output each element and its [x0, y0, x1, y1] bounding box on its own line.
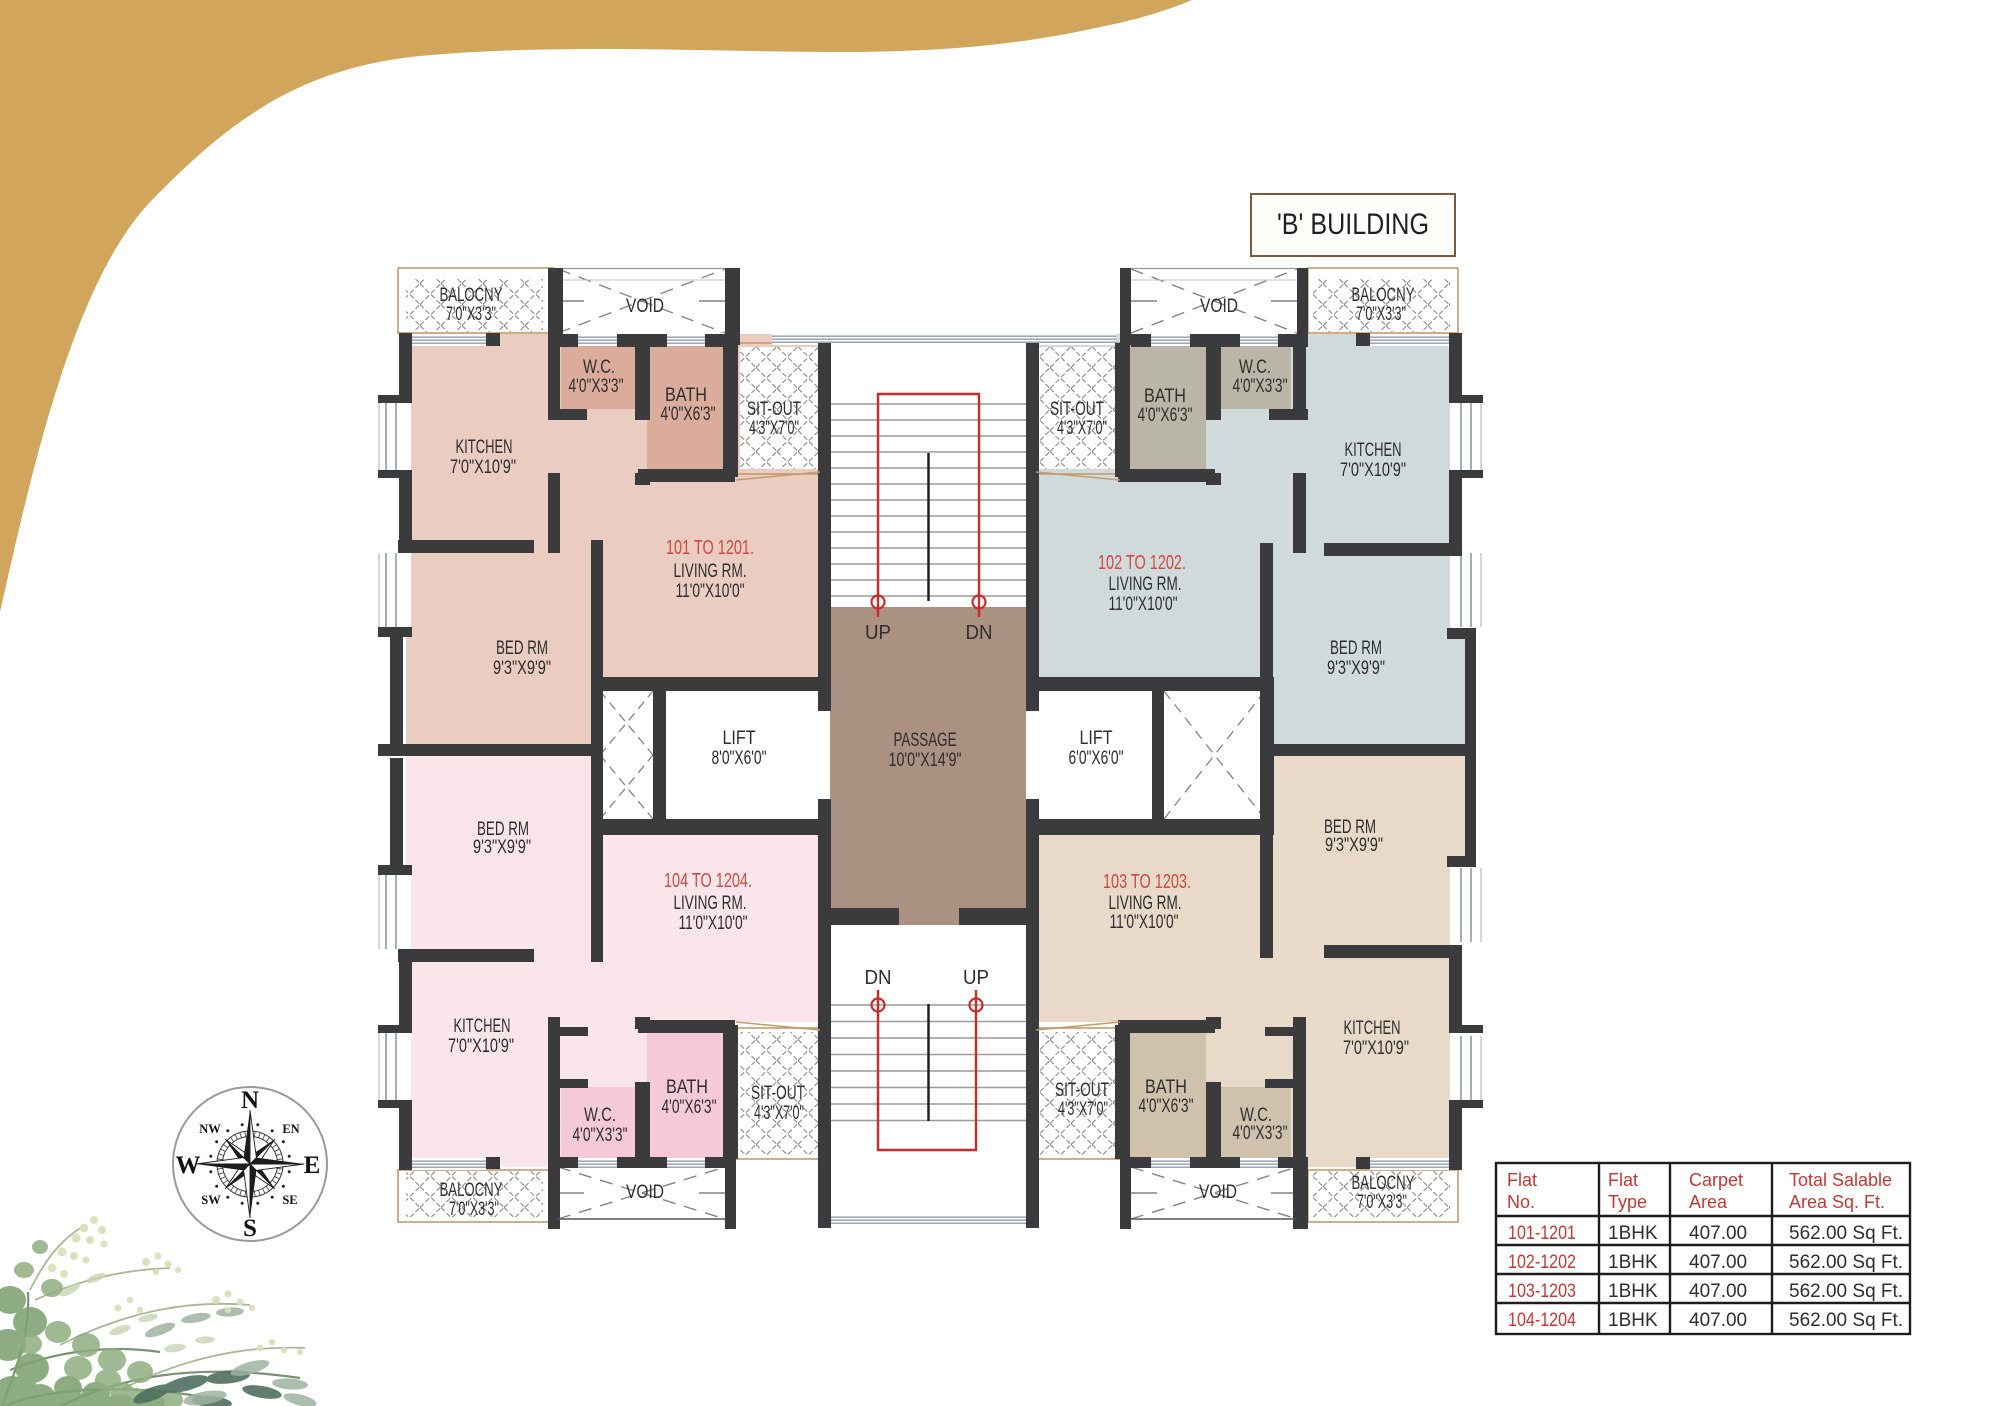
- svg-text:LIVING RM.: LIVING RM.: [1109, 574, 1182, 595]
- svg-text:SIT-OUT: SIT-OUT: [751, 1083, 805, 1104]
- svg-text:11'0"X10'0": 11'0"X10'0": [1109, 594, 1178, 615]
- svg-text:KITCHEN: KITCHEN: [1345, 440, 1402, 461]
- svg-text:6'0"X6'0": 6'0"X6'0": [1069, 748, 1124, 769]
- svg-text:BALOCNY: BALOCNY: [440, 285, 503, 306]
- svg-text:4'0"X3'3": 4'0"X3'3": [573, 1125, 628, 1146]
- svg-text:562.00 Sq Ft.: 562.00 Sq Ft.: [1789, 1310, 1903, 1331]
- svg-text:Carpet: Carpet: [1689, 1170, 1743, 1190]
- svg-text:BATH: BATH: [1144, 386, 1186, 407]
- svg-text:103-1203: 103-1203: [1508, 1281, 1576, 1302]
- svg-text:KITCHEN: KITCHEN: [454, 1016, 511, 1037]
- svg-text:UP: UP: [865, 622, 891, 644]
- svg-text:4'0"X3'3": 4'0"X3'3": [569, 376, 624, 397]
- svg-text:Area: Area: [1689, 1192, 1728, 1212]
- svg-text:KITCHEN: KITCHEN: [1344, 1018, 1401, 1039]
- svg-text:102-1202: 102-1202: [1508, 1252, 1576, 1273]
- svg-text:104 TO 1204.: 104 TO 1204.: [664, 870, 752, 892]
- svg-text:Flat: Flat: [1507, 1170, 1537, 1190]
- svg-text:9'3"X9'9": 9'3"X9'9": [1325, 835, 1383, 856]
- svg-text:407.00: 407.00: [1689, 1252, 1747, 1273]
- svg-text:LIFT: LIFT: [1080, 728, 1113, 749]
- svg-text:10'0"X14'9": 10'0"X14'9": [889, 750, 962, 771]
- svg-text:9'3"X9'9": 9'3"X9'9": [473, 837, 531, 858]
- svg-text:EN: EN: [282, 1122, 299, 1136]
- svg-text:BATH: BATH: [666, 1077, 708, 1098]
- svg-text:407.00: 407.00: [1689, 1223, 1747, 1244]
- svg-text:DN: DN: [966, 622, 993, 644]
- svg-text:11'0"X10'0": 11'0"X10'0": [676, 581, 745, 602]
- svg-text:4'0"X6'3": 4'0"X6'3": [662, 1097, 717, 1118]
- svg-text:E: E: [304, 1152, 321, 1179]
- svg-text:7'0"X3'3": 7'0"X3'3": [449, 1199, 499, 1220]
- svg-text:N: N: [241, 1087, 259, 1114]
- svg-text:8'0"X6'0": 8'0"X6'0": [712, 748, 767, 769]
- svg-text:11'0"X10'0": 11'0"X10'0": [679, 913, 748, 934]
- svg-text:104-1204: 104-1204: [1508, 1310, 1576, 1331]
- svg-text:103 TO 1203.: 103 TO 1203.: [1103, 871, 1191, 893]
- svg-text:VOID: VOID: [1200, 296, 1238, 317]
- svg-text:SIT-OUT: SIT-OUT: [1050, 399, 1104, 420]
- svg-text:BATH: BATH: [665, 385, 707, 406]
- svg-text:407.00: 407.00: [1689, 1310, 1747, 1331]
- svg-text:VOID: VOID: [626, 296, 664, 317]
- svg-text:4'0"X3'3": 4'0"X3'3": [1233, 1123, 1288, 1144]
- svg-text:W.C.: W.C.: [584, 1105, 616, 1126]
- svg-text:562.00 Sq Ft.: 562.00 Sq Ft.: [1789, 1252, 1903, 1273]
- svg-text:Flat: Flat: [1608, 1170, 1638, 1190]
- svg-text:Type: Type: [1608, 1192, 1647, 1212]
- svg-text:4'0"X3'3": 4'0"X3'3": [1233, 376, 1288, 397]
- svg-text:4'0"X6'3": 4'0"X6'3": [1138, 405, 1193, 426]
- svg-text:SW: SW: [201, 1193, 221, 1207]
- svg-text:SIT-OUT: SIT-OUT: [747, 399, 801, 420]
- svg-text:BED RM: BED RM: [496, 638, 548, 659]
- svg-text:101-1201: 101-1201: [1508, 1223, 1576, 1244]
- svg-text:BALOCNY: BALOCNY: [1352, 285, 1415, 306]
- svg-text:PASSAGE: PASSAGE: [894, 730, 957, 751]
- svg-text:7'0"X10'9": 7'0"X10'9": [1343, 1038, 1409, 1059]
- svg-text:NW: NW: [199, 1122, 221, 1136]
- svg-text:1BHK: 1BHK: [1608, 1252, 1658, 1273]
- svg-text:102 TO 1202.: 102 TO 1202.: [1098, 552, 1186, 574]
- svg-text:SE: SE: [282, 1193, 297, 1207]
- svg-text:1BHK: 1BHK: [1608, 1310, 1658, 1331]
- svg-text:BATH: BATH: [1145, 1077, 1187, 1098]
- svg-text:'B' BUILDING: 'B' BUILDING: [1277, 208, 1429, 241]
- svg-text:4'0"X6'3": 4'0"X6'3": [1139, 1096, 1194, 1117]
- svg-text:LIVING RM.: LIVING RM.: [1109, 893, 1182, 914]
- svg-text:DN: DN: [865, 967, 892, 989]
- svg-text:UP: UP: [963, 967, 989, 989]
- svg-text:11'0"X10'0": 11'0"X10'0": [1110, 912, 1179, 933]
- svg-text:KITCHEN: KITCHEN: [456, 437, 513, 458]
- svg-text:S: S: [243, 1215, 257, 1242]
- svg-text:4'3"X7'0": 4'3"X7'0": [1057, 418, 1107, 439]
- svg-text:562.00 Sq Ft.: 562.00 Sq Ft.: [1789, 1281, 1903, 1302]
- svg-text:SIT-OUT: SIT-OUT: [1055, 1080, 1109, 1101]
- svg-text:W: W: [176, 1152, 201, 1179]
- svg-text:LIFT: LIFT: [723, 728, 756, 749]
- svg-text:7'0"X3'3": 7'0"X3'3": [446, 304, 496, 325]
- svg-text:BALOCNY: BALOCNY: [440, 1180, 503, 1201]
- svg-text:4'3"X7'0": 4'3"X7'0": [749, 418, 799, 439]
- svg-text:4'3"X7'0": 4'3"X7'0": [1058, 1099, 1108, 1120]
- svg-text:LIVING RM.: LIVING RM.: [674, 561, 747, 582]
- svg-text:W.C.: W.C.: [1239, 357, 1271, 378]
- svg-text:7'0"X3'3": 7'0"X3'3": [1357, 1192, 1407, 1213]
- svg-text:7'0"X10'9": 7'0"X10'9": [448, 1036, 514, 1057]
- svg-text:BED RM: BED RM: [1330, 638, 1382, 659]
- svg-text:9'3"X9'9": 9'3"X9'9": [493, 658, 551, 679]
- svg-text:No.: No.: [1507, 1192, 1535, 1212]
- svg-text:VOID: VOID: [626, 1182, 664, 1203]
- svg-text:9'3"X9'9": 9'3"X9'9": [1327, 658, 1385, 679]
- svg-text:Total Salable: Total Salable: [1789, 1170, 1892, 1190]
- svg-text:4'0"X6'3": 4'0"X6'3": [661, 404, 716, 425]
- svg-text:562.00 Sq Ft.: 562.00 Sq Ft.: [1789, 1223, 1903, 1244]
- svg-text:1BHK: 1BHK: [1608, 1281, 1658, 1302]
- svg-text:W.C.: W.C.: [583, 357, 615, 378]
- svg-text:VOID: VOID: [1199, 1182, 1237, 1203]
- svg-text:407.00: 407.00: [1689, 1281, 1747, 1302]
- svg-text:1BHK: 1BHK: [1608, 1223, 1658, 1244]
- svg-text:4'3"X7'0": 4'3"X7'0": [754, 1103, 804, 1124]
- svg-text:101 TO 1201.: 101 TO 1201.: [666, 537, 754, 559]
- svg-text:7'0"X10'9": 7'0"X10'9": [450, 457, 516, 478]
- svg-text:LIVING RM.: LIVING RM.: [674, 893, 747, 914]
- svg-text:7'0"X3'3": 7'0"X3'3": [1356, 304, 1406, 325]
- svg-text:Area Sq. Ft.: Area Sq. Ft.: [1789, 1192, 1885, 1212]
- svg-text:BALOCNY: BALOCNY: [1352, 1173, 1415, 1194]
- svg-text:7'0"X10'9": 7'0"X10'9": [1340, 460, 1406, 481]
